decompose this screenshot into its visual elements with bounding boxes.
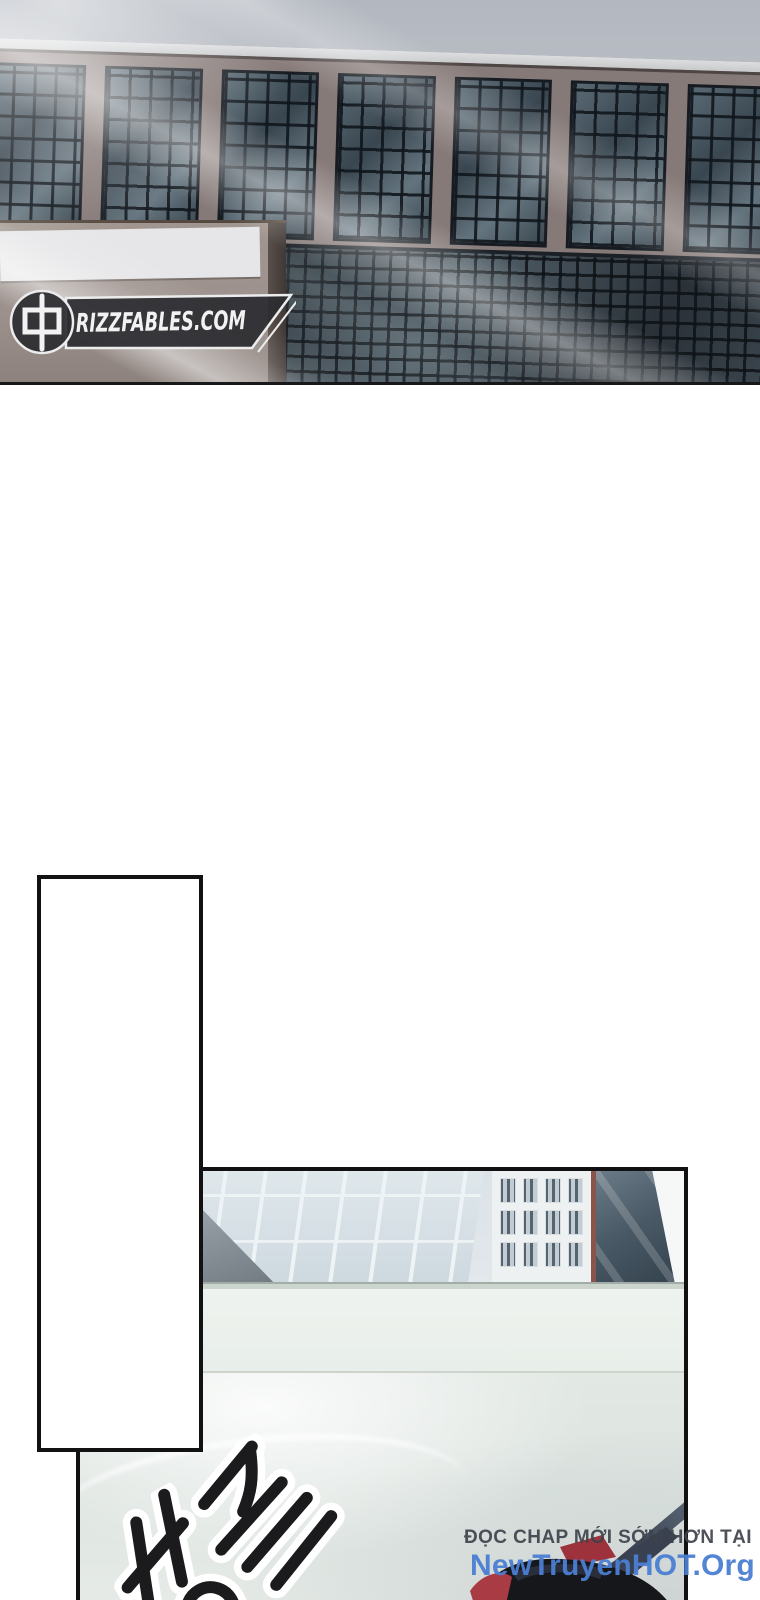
office-window [523, 1210, 539, 1235]
window [566, 80, 669, 251]
office-window [523, 1242, 539, 1267]
window [449, 77, 552, 248]
empty-speech-panel [37, 875, 203, 1452]
window [217, 69, 320, 240]
window [0, 62, 87, 233]
office-window [545, 1178, 561, 1203]
watermark-site-text: RIZZFABLES.COM [76, 306, 247, 339]
office-window-row [500, 1210, 583, 1235]
office-window [568, 1178, 584, 1203]
blank-signboard [0, 227, 260, 282]
site-watermark-logo: RIZZFABLES.COM [6, 286, 296, 356]
office-window-row [500, 1242, 583, 1267]
office-window [568, 1242, 584, 1267]
office-window [545, 1242, 561, 1267]
window [333, 73, 436, 244]
white-office-building [492, 1171, 591, 1287]
comic-panel-building: RIZZFABLES.COM [0, 0, 760, 385]
window [100, 66, 203, 237]
promo-site-link: NewTruyenHOT.Org [470, 1549, 755, 1583]
promo-text-line1: ĐỌC CHAP MỚI SỚM HƠN TẠI [464, 1527, 752, 1549]
office-window [500, 1242, 516, 1267]
office-window [500, 1210, 516, 1235]
office-window [500, 1178, 516, 1203]
office-window-row [500, 1178, 583, 1203]
office-window [568, 1210, 584, 1235]
office-window [523, 1178, 539, 1203]
office-window [545, 1210, 561, 1235]
window [682, 84, 760, 255]
watermark-badge-graphic: RIZZFABLES.COM [6, 286, 296, 356]
